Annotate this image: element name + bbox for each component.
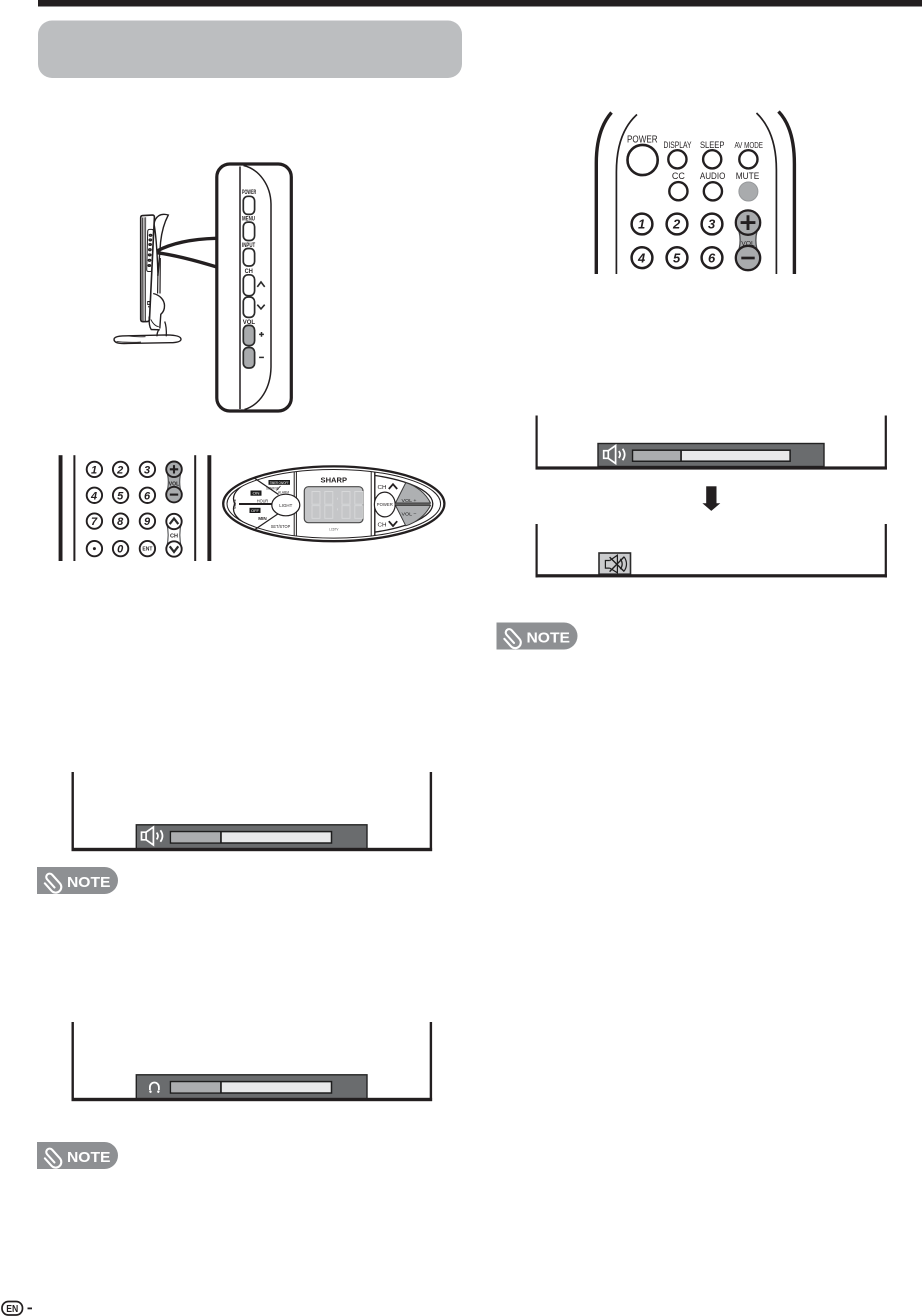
- svg-text:AUDIO: AUDIO: [700, 171, 726, 181]
- svg-text:CC: CC: [672, 171, 685, 181]
- svg-text:0: 0: [117, 544, 124, 556]
- svg-text:3: 3: [708, 217, 716, 232]
- svg-text:TIMER ON/OFF: TIMER ON/OFF: [270, 481, 289, 485]
- svg-text:EN: EN: [6, 1304, 18, 1315]
- svg-text:MODE: MODE: [233, 498, 237, 509]
- svg-text:9: 9: [144, 516, 151, 528]
- svg-text:OFF: OFF: [251, 508, 260, 513]
- svg-text:ALARM: ALARM: [278, 490, 289, 494]
- svg-text:SHARP: SHARP: [321, 477, 348, 484]
- svg-text:POWER: POWER: [377, 502, 393, 507]
- svg-text:VOL −: VOL −: [402, 512, 417, 518]
- svg-text:POWER: POWER: [242, 189, 256, 196]
- svg-text:AV MODE: AV MODE: [734, 141, 763, 150]
- svg-text:8: 8: [117, 516, 124, 528]
- svg-text:LIGHT: LIGHT: [279, 503, 292, 508]
- svg-text:2: 2: [116, 464, 123, 476]
- svg-text:ENT: ENT: [142, 547, 153, 553]
- svg-text:LCDTV: LCDTV: [329, 528, 339, 532]
- svg-text:VOL: VOL: [169, 481, 180, 487]
- svg-text:2: 2: [672, 217, 681, 232]
- svg-text:MIN: MIN: [258, 516, 267, 521]
- svg-text:4: 4: [637, 250, 646, 265]
- svg-text:DISPLAY: DISPLAY: [664, 140, 692, 150]
- svg-text:VOL +: VOL +: [402, 498, 417, 504]
- svg-text:5: 5: [673, 250, 681, 265]
- svg-text:HOUR: HOUR: [257, 498, 269, 503]
- svg-text:SLEEP: SLEEP: [700, 140, 725, 150]
- svg-text:SET/STOP: SET/STOP: [271, 524, 291, 529]
- svg-text:ON: ON: [253, 491, 260, 496]
- svg-text:1: 1: [638, 217, 645, 232]
- svg-text:4: 4: [90, 490, 97, 502]
- svg-text:5: 5: [117, 490, 124, 502]
- svg-text:VOL: VOL: [741, 241, 755, 248]
- svg-text:6: 6: [144, 490, 151, 502]
- svg-text:CH: CH: [170, 534, 178, 540]
- svg-text:1: 1: [91, 464, 97, 476]
- svg-text:3: 3: [144, 464, 150, 476]
- svg-text:7: 7: [91, 516, 98, 528]
- svg-text:MUTE: MUTE: [736, 171, 760, 181]
- svg-text:CH: CH: [378, 523, 387, 529]
- svg-text:CH: CH: [378, 485, 387, 491]
- svg-text:6: 6: [708, 250, 716, 265]
